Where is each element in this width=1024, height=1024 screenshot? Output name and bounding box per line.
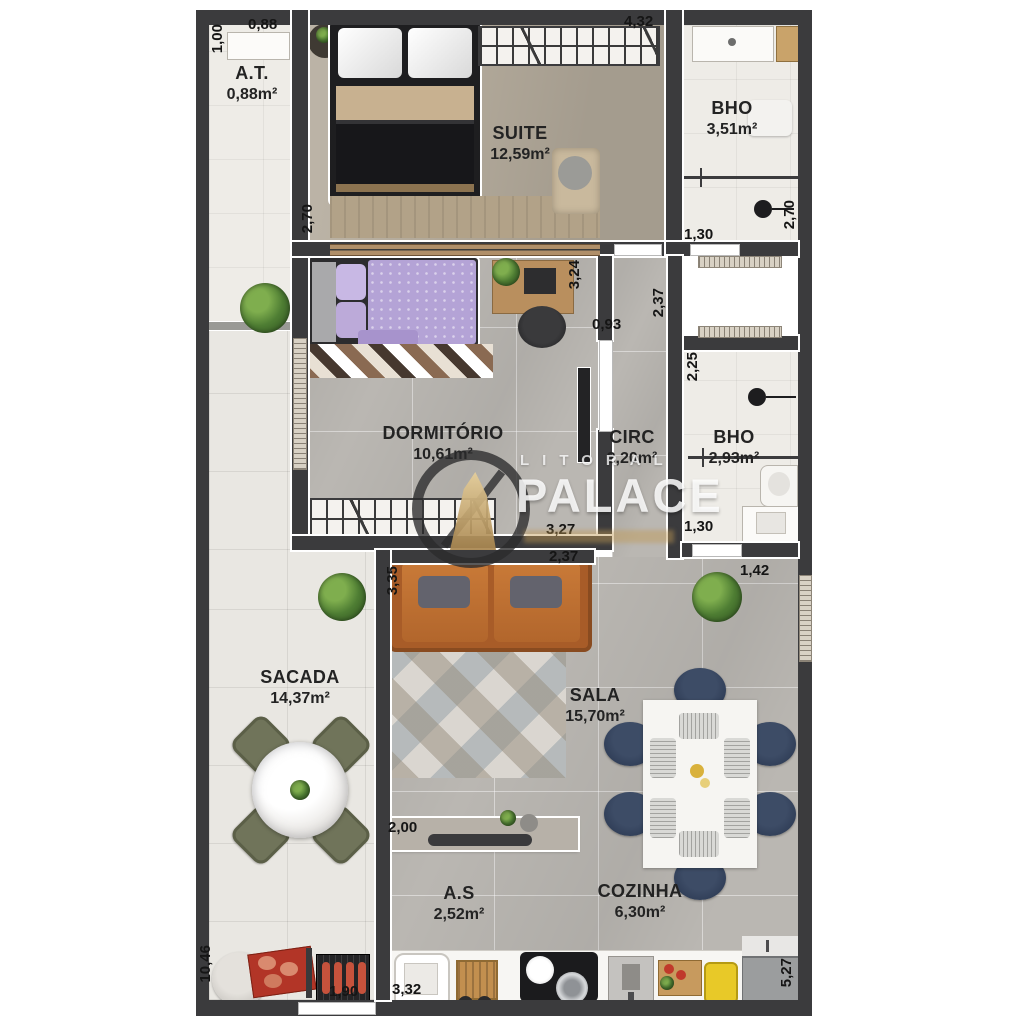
grill-tool-icon bbox=[306, 948, 312, 998]
room-label-living: SALA 15,70m² bbox=[530, 684, 660, 728]
kitchen-basket bbox=[456, 960, 498, 1000]
room-area: 12,59m² bbox=[458, 145, 582, 166]
wall-top bbox=[196, 10, 812, 25]
wall-hall-east bbox=[668, 256, 682, 558]
bedroom-closet bbox=[308, 498, 496, 540]
room-label-suite: SUITE 12,59m² bbox=[458, 122, 582, 166]
suite-wardrobe-slide bbox=[330, 244, 600, 256]
room-name: BHO bbox=[678, 97, 786, 120]
dim-label: 0,93 bbox=[592, 316, 621, 333]
room-name: DORMITÓRIO bbox=[338, 422, 548, 445]
room-label-circ: CIRC 2,20m² bbox=[578, 426, 686, 470]
wall-right bbox=[798, 10, 812, 1016]
balcony-plant-1-icon bbox=[240, 283, 290, 333]
balcony-bottom-door bbox=[298, 1002, 376, 1015]
dim-label: 2,37 bbox=[650, 288, 667, 317]
balcony-floor-upper bbox=[209, 330, 292, 550]
kitchen-sink-basin-icon bbox=[622, 964, 640, 990]
kettle bbox=[704, 962, 738, 1004]
dining-mat-4 bbox=[724, 738, 750, 778]
dining-centerpiece-icon bbox=[690, 764, 704, 778]
dim-label: 0,88 bbox=[248, 16, 277, 33]
room-area: 3,51m² bbox=[678, 120, 786, 141]
dining-mat-1 bbox=[679, 713, 719, 739]
room-area: 10,61m² bbox=[338, 445, 548, 466]
sofa-pillow-left bbox=[418, 576, 470, 608]
bedroom-laptop bbox=[524, 268, 556, 294]
tomato-icon-2 bbox=[676, 970, 686, 980]
bathroom2-toilet-seat-icon bbox=[768, 472, 790, 496]
dim-label: 10,46 bbox=[197, 945, 214, 983]
dining-mat-5 bbox=[724, 798, 750, 838]
room-name: SUITE bbox=[458, 122, 582, 145]
dim-label: 1,42 bbox=[740, 562, 769, 579]
dining-mat-6 bbox=[679, 831, 719, 857]
dim-label: 2,25 bbox=[684, 352, 701, 381]
cooktop-pot-icon bbox=[526, 956, 554, 984]
room-label-bedroom: DORMITÓRIO 10,61m² bbox=[338, 422, 548, 466]
meat-icon-2 bbox=[280, 962, 298, 976]
bedroom-door bbox=[599, 340, 613, 432]
bathroom2-drain-pipe-icon bbox=[766, 396, 796, 398]
shaft-floor bbox=[682, 256, 798, 336]
dim-label: 2,00 bbox=[388, 819, 417, 836]
room-name: A.S bbox=[398, 882, 520, 905]
bathroom2-door bbox=[692, 544, 742, 557]
room-area: 2,20m² bbox=[578, 449, 686, 470]
dim-label: 1,30 bbox=[684, 226, 713, 243]
room-name: BHO bbox=[680, 426, 788, 449]
sofa-pillow-right bbox=[510, 576, 562, 608]
dim-label: 3,27 bbox=[546, 521, 575, 538]
meat-icon-1 bbox=[258, 956, 276, 970]
counter-plant-icon bbox=[500, 810, 516, 826]
living-plant-icon bbox=[692, 572, 742, 622]
suite-blanket-fold bbox=[336, 86, 474, 120]
room-label-kitchen: COZINHA 6,30m² bbox=[556, 880, 724, 924]
meat-icon-3 bbox=[264, 974, 282, 988]
living-window bbox=[799, 575, 812, 662]
room-name: CIRC bbox=[578, 426, 686, 449]
suite-blanket bbox=[336, 120, 474, 192]
suite-pillow-left bbox=[338, 28, 402, 78]
dim-label: 1,30 bbox=[684, 518, 713, 535]
dim-label: 3,32 bbox=[392, 981, 421, 998]
room-label-at: A.T. 0,88m² bbox=[202, 62, 302, 106]
room-label-laundry: A.S 2,52m² bbox=[398, 882, 520, 926]
dim-label: 1,90 bbox=[329, 983, 358, 1000]
wall-bottom bbox=[196, 1000, 812, 1016]
at-cabinet bbox=[227, 32, 290, 60]
skewer-icon-4 bbox=[358, 962, 366, 994]
shaft-window-top bbox=[698, 256, 782, 268]
bathroom1-door bbox=[690, 244, 740, 256]
room-label-balcony: SACADA 14,37m² bbox=[218, 666, 382, 710]
bedroom-plant-icon bbox=[492, 258, 520, 286]
balcony-table-plant-icon bbox=[290, 780, 310, 800]
herbs-icon bbox=[660, 976, 674, 990]
dim-label: 3,35 bbox=[384, 566, 401, 595]
room-name: SALA bbox=[530, 684, 660, 707]
bathroom1-shelf bbox=[776, 26, 800, 62]
tomato-icon bbox=[664, 964, 674, 974]
fridge-top-icon bbox=[742, 936, 798, 958]
room-area: 2,93m² bbox=[680, 449, 788, 470]
dining-mat-3 bbox=[650, 798, 676, 838]
room-label-bathroom2: BHO 2,93m² bbox=[680, 426, 788, 470]
dim-label: 1,00 bbox=[209, 24, 226, 53]
dim-label: 3,24 bbox=[566, 260, 583, 289]
bedroom-window bbox=[293, 338, 307, 470]
bathroom1-shower-drain-icon bbox=[754, 200, 772, 218]
room-area: 0,88m² bbox=[202, 85, 302, 106]
dim-label: 2,70 bbox=[299, 204, 316, 233]
dim-label: 4,32 bbox=[624, 13, 653, 30]
wall-left bbox=[196, 10, 209, 1016]
counter-bowl-icon bbox=[520, 814, 538, 832]
suite-closet bbox=[478, 26, 660, 66]
room-area: 14,37m² bbox=[218, 689, 382, 710]
bathroom2-sink-icon bbox=[756, 512, 786, 534]
room-area: 15,70m² bbox=[530, 707, 660, 728]
room-name: SACADA bbox=[218, 666, 382, 689]
wall-shaft-bottom bbox=[682, 336, 798, 350]
bathroom1-faucet-icon bbox=[728, 38, 736, 46]
counter-tray bbox=[428, 834, 532, 846]
bedroom-rug bbox=[303, 344, 493, 378]
shaft-window-bottom bbox=[698, 326, 782, 338]
floor-plan: A.T. 0,88m² SUITE 12,59m² BHO 3,51m² DOR… bbox=[0, 0, 1024, 1024]
bedroom-office-chair bbox=[518, 306, 566, 348]
suite-pillow-right bbox=[408, 28, 472, 78]
room-area: 2,52m² bbox=[398, 905, 520, 926]
dim-label: 5,27 bbox=[778, 958, 795, 987]
bedroom-pillow-1 bbox=[336, 264, 366, 300]
dim-label: 2,37 bbox=[549, 548, 578, 565]
bathroom1-glass-handle-icon bbox=[700, 168, 702, 187]
bedroom-headboard bbox=[312, 262, 336, 342]
bathroom2-shower-drain-icon bbox=[748, 388, 766, 406]
room-name: COZINHA bbox=[556, 880, 724, 903]
dining-mat-2 bbox=[650, 738, 676, 778]
room-label-bathroom1: BHO 3,51m² bbox=[678, 97, 786, 141]
room-area: 6,30m² bbox=[556, 903, 724, 924]
wall-balcony-living bbox=[376, 550, 390, 1000]
room-name: A.T. bbox=[202, 62, 302, 85]
balcony-plant-2-icon bbox=[318, 573, 366, 621]
dining-centerpiece-icon-2 bbox=[700, 778, 710, 788]
suite-door bbox=[614, 244, 662, 256]
dim-label: 2,70 bbox=[781, 200, 798, 229]
fridge-handle-icon bbox=[766, 940, 769, 952]
